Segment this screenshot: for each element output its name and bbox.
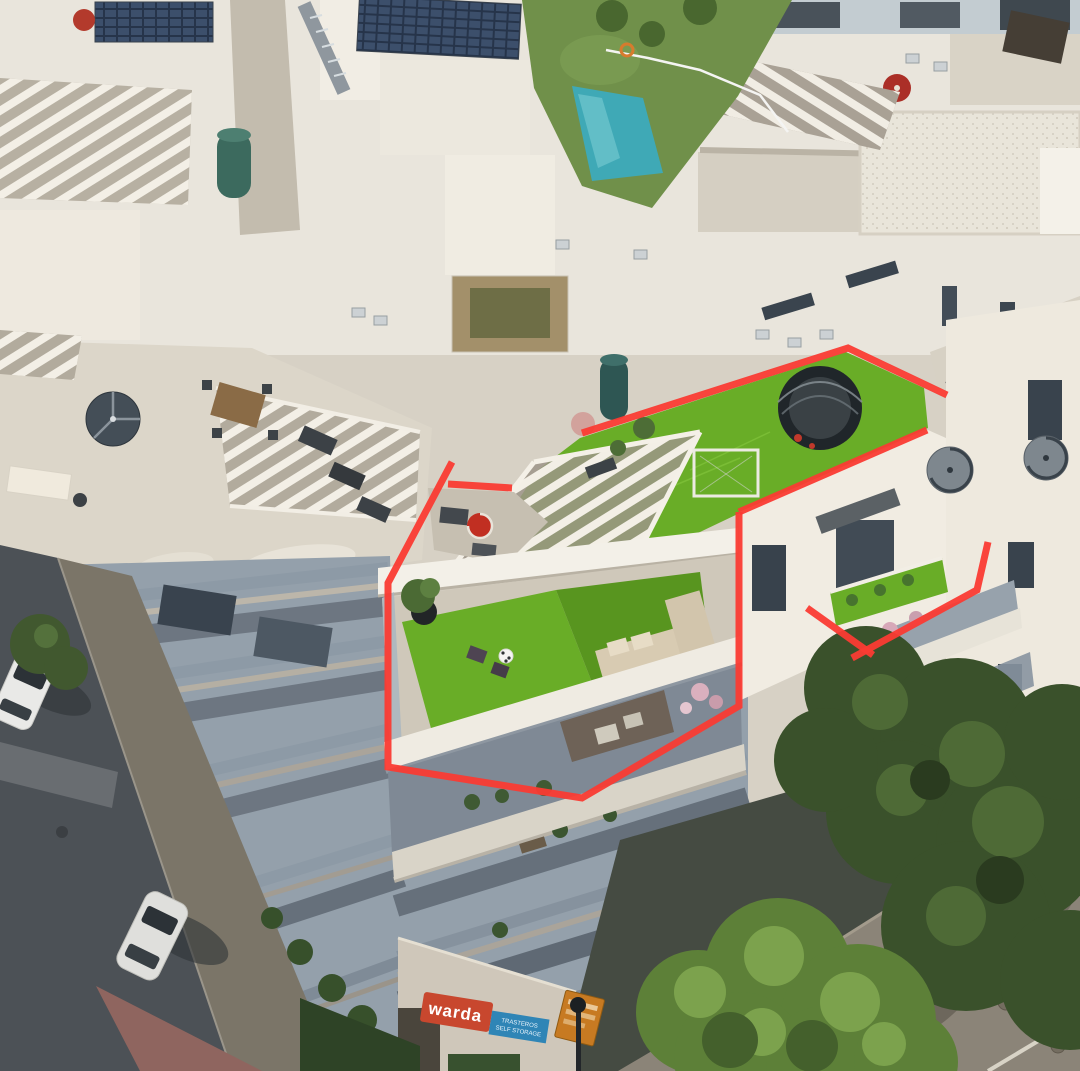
chair <box>268 430 278 440</box>
roof-block <box>0 210 140 340</box>
terrace-plant <box>633 417 655 439</box>
street-shrub <box>287 939 313 965</box>
spiral-staircase <box>927 447 973 493</box>
tree-canopy <box>44 646 88 690</box>
outline-segment-notch <box>448 484 512 488</box>
trampoline <box>778 366 862 450</box>
tree <box>639 21 665 47</box>
spiral-stair-center <box>947 467 953 473</box>
tree-shade-gap <box>786 1020 838 1071</box>
tree-highlight <box>972 786 1044 858</box>
street-shrub <box>318 974 346 1002</box>
tree-shade-gap <box>910 760 950 800</box>
water-tank-top <box>600 354 628 366</box>
red-tank <box>73 9 95 31</box>
hedge <box>448 1054 520 1071</box>
aerial-photo-svg: warda TRASTEROS SELF STORAGE <box>0 0 1080 1071</box>
balcony-plant <box>464 794 480 810</box>
roof-block <box>445 155 555 275</box>
tree-highlight <box>34 624 58 648</box>
pergola-slats <box>0 330 82 380</box>
ac-unit <box>374 316 387 325</box>
tree-shade-gap <box>702 1012 758 1068</box>
ac-unit <box>556 240 569 249</box>
laundry <box>680 702 692 714</box>
solar-panels <box>357 0 522 59</box>
lawn-light-patch <box>560 35 640 85</box>
roof-box <box>1040 148 1080 234</box>
water-tank-teal <box>600 358 628 420</box>
tree-highlight <box>744 926 804 986</box>
stair-center <box>110 416 116 422</box>
street-lamp-head <box>570 997 586 1013</box>
balcony-plant <box>846 594 858 606</box>
planted-roof-surface <box>470 288 550 338</box>
ac-unit <box>820 330 833 339</box>
toy <box>809 443 815 449</box>
window <box>752 545 786 611</box>
chair <box>202 380 212 390</box>
tree-highlight <box>820 972 880 1032</box>
manhole <box>56 826 68 838</box>
solar-panels <box>95 2 213 42</box>
parasol-center <box>894 85 900 91</box>
street-lamp-pole <box>576 1008 581 1071</box>
soccer-ball-patch <box>501 651 504 654</box>
gravel-strip <box>698 152 862 232</box>
balcony-plant <box>495 789 509 803</box>
terrace-plant <box>610 440 626 456</box>
balcony-plant <box>902 574 914 586</box>
tree-highlight <box>674 966 726 1018</box>
water-tank-top <box>217 128 251 142</box>
window <box>900 2 960 28</box>
tree-highlight <box>862 1022 906 1066</box>
aerial-photo: warda TRASTEROS SELF STORAGE <box>0 0 1080 1071</box>
chair <box>212 428 222 438</box>
pergola-slats <box>0 78 192 205</box>
window <box>1028 380 1062 440</box>
ac-unit <box>756 330 769 339</box>
ac-unit <box>352 308 365 317</box>
balcony-plant <box>874 584 886 596</box>
bench <box>471 543 496 557</box>
street-shrub <box>261 907 283 929</box>
soccer-ball-patch <box>507 656 510 659</box>
tree-highlight <box>852 674 908 730</box>
side-table <box>73 493 87 507</box>
laundry <box>709 695 723 709</box>
ac-unit <box>906 54 919 63</box>
ac-unit <box>934 62 947 71</box>
potted-plant <box>420 578 440 598</box>
ac-unit <box>788 338 801 347</box>
roof-block <box>380 60 530 155</box>
toy <box>794 434 802 442</box>
tree-shade-gap <box>976 856 1024 904</box>
spiral-staircase <box>1024 436 1068 480</box>
ac-unit <box>634 250 647 259</box>
tree <box>596 0 628 32</box>
balcony-plant <box>492 922 508 938</box>
tree-highlight <box>926 886 986 946</box>
laundry <box>691 683 709 701</box>
bench <box>439 507 469 526</box>
soccer-ball-patch <box>504 659 507 662</box>
spiral-stair-center <box>1043 455 1049 461</box>
chair <box>262 384 272 394</box>
